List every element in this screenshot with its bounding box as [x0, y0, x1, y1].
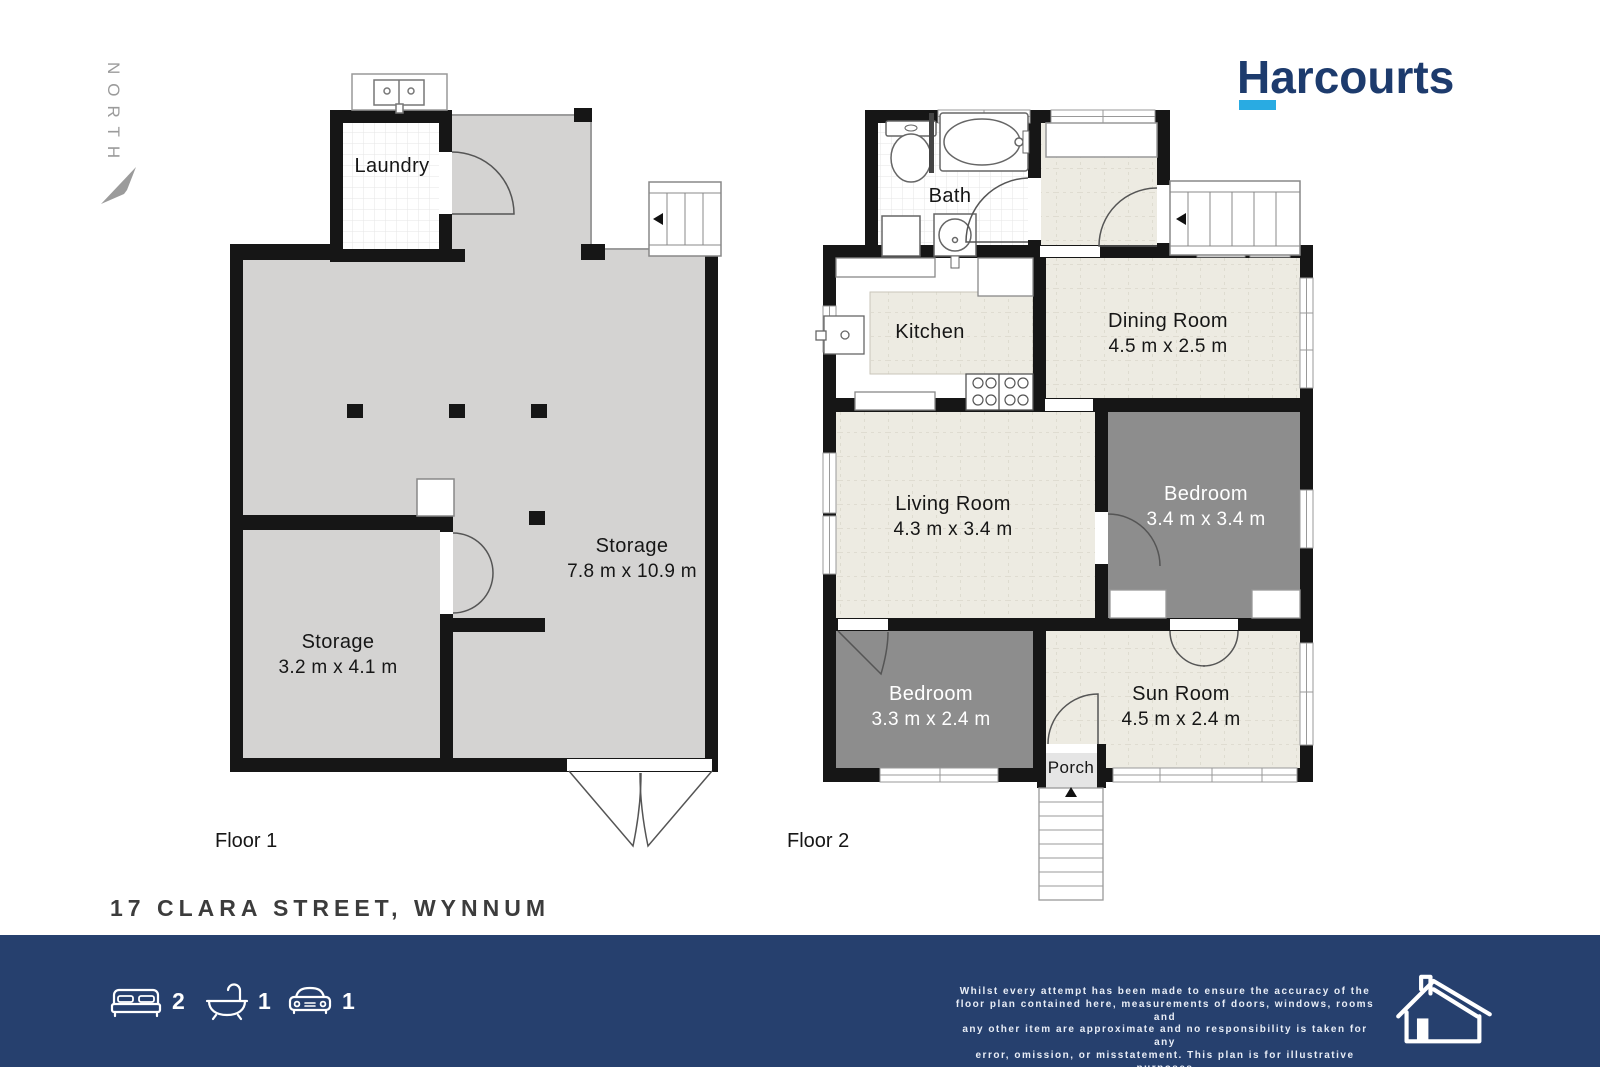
room-label-bedroom-right: Bedroom 3.4 m x 3.4 m: [1147, 481, 1266, 533]
floor2-tag: Floor 2: [787, 830, 849, 853]
bath-icon: [204, 980, 250, 1022]
compass-arrow-icon: [98, 164, 146, 208]
floor2-stairs: [1170, 181, 1300, 255]
compass-north-label: NORTH: [103, 62, 123, 167]
floor1-plan: [230, 74, 721, 846]
house-icon: [1392, 968, 1496, 1046]
car-icon: [288, 984, 332, 1018]
logo-underline: [1239, 100, 1276, 110]
closet: [417, 479, 454, 516]
floor1-tag: Floor 1: [215, 830, 277, 853]
floor1-stairs: [649, 182, 721, 256]
porch-stairs: [1039, 787, 1103, 900]
room-label-laundry: Laundry: [354, 153, 429, 179]
bed-icon: [110, 984, 162, 1018]
cars-count: 1: [342, 988, 355, 1015]
laundry-floor: [343, 123, 439, 249]
harcourts-logo: Harcourts: [1237, 50, 1454, 104]
room-label-dining: Dining Room 4.5 m x 2.5 m: [1108, 308, 1228, 360]
room-label-living: Living Room 4.3 m x 3.4 m: [894, 491, 1013, 543]
room-label-storage-small: Storage 3.2 m x 4.1 m: [279, 629, 398, 681]
room-label-kitchen: Kitchen: [895, 319, 965, 345]
floorplan-page: NORTH Harcourts Laundry Storage 7.8 m x …: [0, 0, 1600, 1067]
baths-count: 1: [258, 988, 271, 1015]
disclaimer-text: Whilst every attempt has been made to en…: [950, 986, 1380, 1067]
room-label-storage-main: Storage 7.8 m x 10.9 m: [567, 533, 697, 585]
room-label-bath: Bath: [929, 183, 972, 209]
beds-count: 2: [172, 988, 185, 1015]
entry-bench: [1046, 123, 1157, 157]
room-label-porch: Porch: [1048, 759, 1094, 777]
laundry-sink: [352, 74, 447, 113]
property-address: 17 CLARA STREET, WYNNUM: [110, 895, 550, 922]
room-label-bedroom-left: Bedroom 3.3 m x 2.4 m: [872, 681, 991, 733]
room-label-sunroom: Sun Room 4.5 m x 2.4 m: [1122, 681, 1241, 733]
